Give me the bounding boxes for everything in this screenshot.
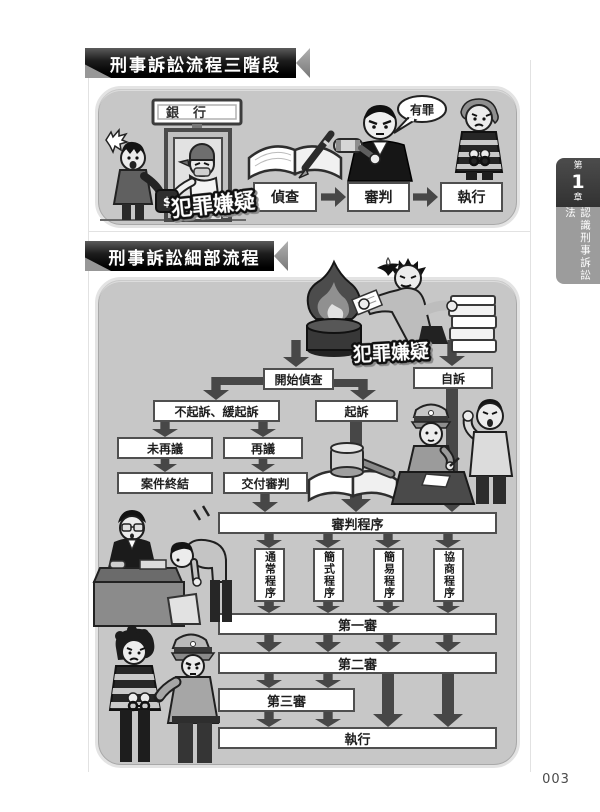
node-private-prosecution: 自訴 xyxy=(413,367,493,389)
chapter-side-tab: 第 1 章 認識刑事訴訟法 xyxy=(556,158,600,284)
page-number: 003 xyxy=(534,772,578,787)
left-margin-rule xyxy=(88,60,89,772)
svg-text:犯罪嫌疑: 犯罪嫌疑 xyxy=(351,339,429,366)
police-escort-illustration xyxy=(100,622,230,764)
node-no-reconsideration: 未再議 xyxy=(117,437,213,459)
node-refer-to-trial: 交付審判 xyxy=(223,472,308,494)
book-page: 刑事訴訟流程三階段 銀行 $ xyxy=(0,0,600,812)
verdict-bubble-label: 有罪 xyxy=(410,102,434,117)
chapter-marker: 第 1 章 xyxy=(556,158,600,207)
suspect-label-section2: 犯罪嫌疑 xyxy=(336,334,446,368)
node-third-instance: 第三審 xyxy=(218,688,355,712)
section2-title: 刑事訴訟細部流程 xyxy=(109,244,261,269)
gavel-book-icon xyxy=(303,438,403,504)
right-margin-rule xyxy=(530,60,531,772)
node-non-prosecution: 不起訴、緩起訴 xyxy=(153,400,280,422)
node-trial-procedure: 審判程序 xyxy=(218,512,497,534)
node-execution: 執行 xyxy=(218,727,497,749)
node-second-instance: 第二審 xyxy=(218,652,497,674)
node-reconsideration: 再議 xyxy=(223,437,303,459)
node-simplified-procedure: 簡式程序 xyxy=(313,548,344,602)
chapter-number: 1 xyxy=(571,172,584,194)
section1-title: 刑事訴訟流程三階段 xyxy=(110,51,281,76)
chapter-suffix: 章 xyxy=(573,193,582,203)
banner-notch-icon xyxy=(296,48,310,78)
section2-banner: 刑事訴訟細部流程 xyxy=(85,241,288,271)
node-ordinary-procedure: 通常程序 xyxy=(254,548,285,602)
node-summary-procedure: 簡易程序 xyxy=(373,548,404,602)
convict-illustration xyxy=(444,92,514,180)
section-divider-rule xyxy=(88,231,531,232)
glasses-icon xyxy=(122,524,131,531)
bank-sign-label: 銀行 xyxy=(166,105,220,121)
node-negotiation-procedure: 協商程序 xyxy=(433,548,464,602)
surprise-marks-icon xyxy=(194,506,209,520)
node-prosecution: 起訴 xyxy=(315,400,398,422)
stage-execution: 執行 xyxy=(440,182,503,212)
node-first-instance: 第一審 xyxy=(218,613,497,635)
police-complaint-illustration xyxy=(398,388,520,506)
suspect-label-section1: 犯罪嫌疑 xyxy=(158,184,268,224)
stage-trial: 審判 xyxy=(347,182,410,212)
judge-illustration: 有罪 xyxy=(328,93,450,181)
svg-text:犯罪嫌疑: 犯罪嫌疑 xyxy=(169,189,256,222)
chapter-title: 認識刑事訴訟法 xyxy=(556,207,600,284)
node-investigation-start: 開始偵查 xyxy=(263,368,334,390)
court-bow-illustration xyxy=(98,504,243,626)
section1-banner: 刑事訴訟流程三階段 xyxy=(85,48,310,78)
node-case-closed: 案件終結 xyxy=(117,472,213,494)
